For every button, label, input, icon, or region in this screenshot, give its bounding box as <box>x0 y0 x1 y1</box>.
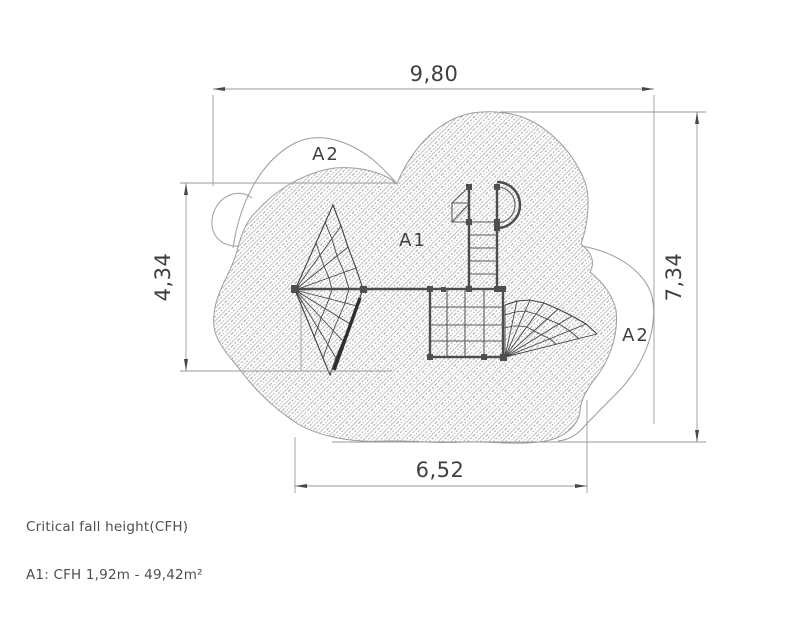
rubber-surface-hatched-area <box>214 112 617 443</box>
legend-title: Critical fall height(CFH) <box>26 519 239 535</box>
area-label-a2-top: A2 <box>312 144 340 165</box>
legend: Critical fall height(CFH) A1: CFH 1,92m … <box>26 486 239 618</box>
dimension-label-height-right: 7,34 <box>662 253 686 302</box>
area-label-a1: A1 <box>399 230 427 251</box>
area-label-a2-right: A2 <box>622 325 650 346</box>
dimension-label-width-bottom: 6,52 <box>416 458 465 482</box>
dimension-label-height-left: 4,34 <box>151 253 175 302</box>
legend-line-a1: A1: CFH 1,92m - 49,42m² <box>26 567 239 583</box>
technical-drawing-page: 9,80 7,34 4,34 6,52 A1 A2 A2 Critical fa… <box>0 0 800 618</box>
dimension-label-width-top: 9,80 <box>410 62 459 86</box>
